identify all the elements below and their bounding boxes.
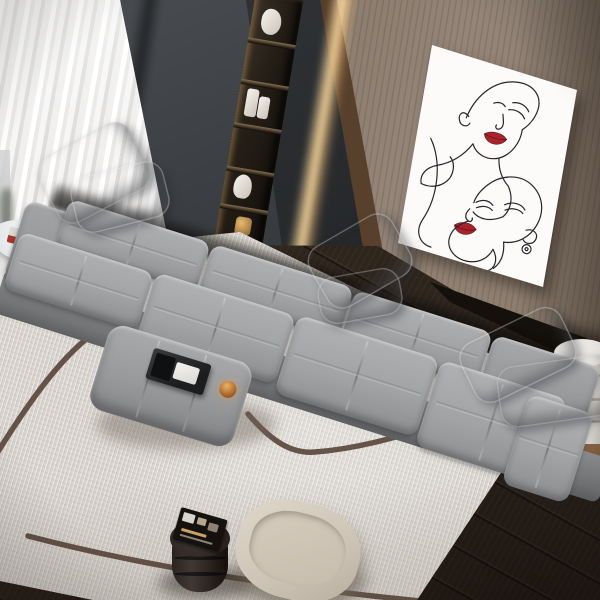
magazine-photo [196,517,207,526]
rug-shading [0,0,600,600]
wood-grain-texture [0,0,600,600]
sofa-pillow [31,116,158,230]
sofa-pillow [301,207,419,316]
modular-sofa [0,168,600,519]
side-table-magazine [7,226,42,249]
shelf-board [220,203,268,216]
figurine-body [32,230,44,241]
sofa-pillow [314,265,405,327]
ottoman-coffee-table [86,322,255,450]
serving-tray [145,348,212,396]
photo-vignette [0,0,600,600]
magazine-text-bar [180,534,213,545]
line-art-faces [398,62,578,282]
gold-decor [234,216,253,236]
sofa-left-arm [3,200,115,306]
sofa-seat [415,360,568,486]
stool-groove [174,556,226,560]
tray-lid [150,353,176,382]
candle-holder [217,379,238,400]
curtains [0,0,600,600]
sofa-back-cushion [339,290,493,387]
sofa-right-arm [476,334,600,427]
pouf [226,488,370,600]
baseboard-shadow [0,0,600,600]
wood-panel-wall [0,0,600,600]
led-glow-strip [286,0,360,263]
wood-wall-shading [0,0,600,600]
cylinder-table-top [554,339,600,367]
shelf-board [248,37,296,50]
astronaut-figurine [32,224,44,241]
wall-shadow-fold [102,0,164,225]
shelf-board [233,122,281,135]
white-ornament [232,173,254,200]
side-table-leg [0,220,120,340]
stool-shadow [158,568,254,598]
shelf-board [226,166,274,179]
curtain-shading [0,0,600,600]
shelf-niche [213,0,304,258]
wall-art-poster [0,0,600,600]
tray-napkins [172,362,200,385]
cylinder-table-wood-base [546,428,600,472]
light-floor-strip [0,0,600,600]
white-candle [256,96,270,120]
living-room-photo [0,0,600,600]
sofa-seat [3,231,155,330]
area-rug [0,0,600,600]
pouf-shadow [228,560,368,600]
side-table-top [0,213,72,270]
floor-vignette [0,0,600,600]
stool-magazine [172,507,227,552]
charcoal-wall [0,0,600,600]
sofa-pillow [66,157,173,237]
table-groove [556,374,600,377]
stool-groove [174,572,226,576]
magazine-photo [207,522,219,532]
window-frame-sliver [0,150,10,258]
ottoman-seam [182,354,208,432]
pouf-cushion [242,502,353,595]
poster-canvas [398,45,577,287]
table-groove [556,398,600,401]
plant-glimpse [0,188,13,232]
sofa-seat [274,315,440,438]
ottoman-shadow [96,398,276,450]
stool-top [170,520,230,557]
side-table-base [9,250,66,290]
sofa-back-cushion [197,244,354,340]
shelf-cabinet [0,0,600,600]
sofa-pillow [453,301,583,409]
magazine-photo [182,512,196,524]
sofa-seat [135,272,296,385]
drum-stool [172,538,228,592]
magazine-title-bar [181,528,207,538]
ottoman-seam [135,340,161,418]
sofa-back-cushion [54,198,211,292]
sofa-base [0,268,600,503]
wood-trim-strip [0,0,600,600]
table-groove [556,420,600,423]
figurine-head [34,224,42,232]
wood-floor [0,0,600,600]
white-candle [243,88,259,118]
cylinder-table-body [556,352,600,444]
sofa-drop-shadow [33,292,574,483]
sofa-wall-shadow [50,180,593,375]
table-backdrop-shadow [520,323,600,486]
white-sculpture [259,7,283,36]
shelf-board [241,79,289,92]
rug-arc-lines [0,0,600,600]
sofa-pillow [494,352,600,430]
sofa-chaise-seat [501,394,594,504]
